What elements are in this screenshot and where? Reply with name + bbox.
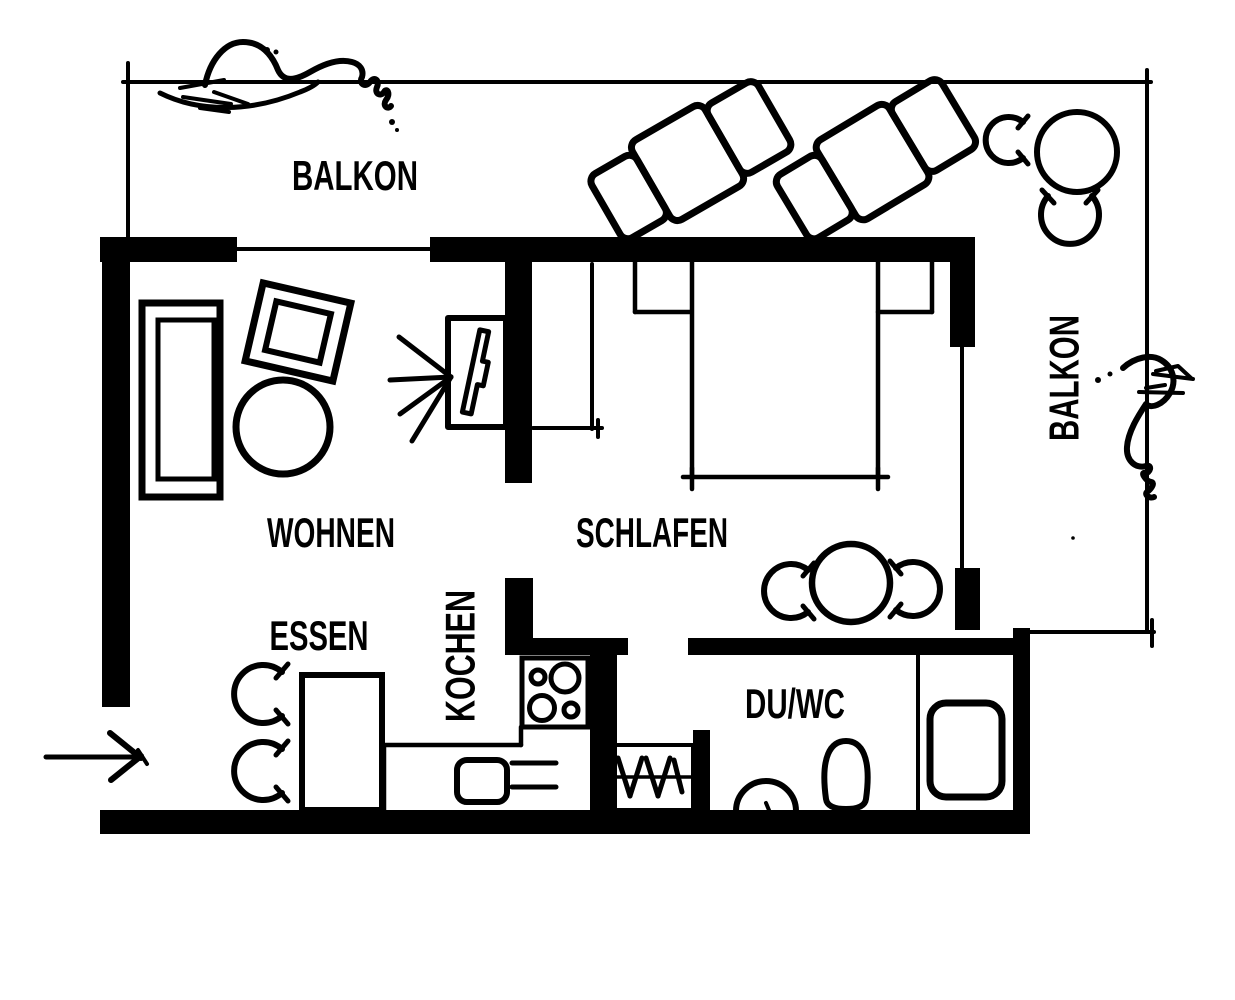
label-du-wc: DU/WC	[745, 680, 845, 727]
label-balkon-top: BALKON	[292, 152, 418, 199]
bedroom-chair-left	[764, 564, 808, 618]
entry-arrow-head	[110, 733, 141, 758]
wall-top-main	[430, 237, 975, 262]
label-balkon-right: BALKON	[1041, 315, 1088, 441]
plant-sketch-top-left	[160, 42, 399, 132]
armchair	[245, 283, 351, 381]
bedroom-table-set	[764, 544, 940, 622]
lounger-seat-section	[813, 101, 932, 223]
stove-burner	[551, 664, 579, 692]
plant-dot	[389, 119, 395, 125]
stove-burner	[531, 670, 545, 684]
balcony-chair-left	[986, 117, 1023, 163]
floorplan-drawing: BALKON WOHNEN SCHLAFEN ESSEN KOCHEN DU/W…	[0, 0, 1235, 1000]
wall-left	[102, 237, 130, 707]
wall-partition-living-bedroom	[505, 262, 532, 483]
balcony-round-table	[1037, 112, 1117, 192]
plant-dot	[395, 128, 399, 132]
dining-chair-lower	[234, 742, 282, 800]
entry-arrow-head	[111, 756, 141, 780]
lounger-seat-section	[628, 102, 747, 224]
sofa	[142, 303, 220, 497]
plant-dot	[264, 47, 270, 53]
bedroom-wardrobe	[533, 264, 602, 437]
lounger-back-section	[888, 76, 979, 174]
entry-arrow	[46, 733, 147, 780]
kitchen-sink	[457, 760, 507, 802]
sofa-outline	[142, 303, 220, 497]
wall-right-lower	[1013, 628, 1030, 812]
label-kochen: KOCHEN	[437, 590, 484, 722]
nightstand-left	[635, 262, 690, 312]
plant-dot	[1108, 372, 1113, 377]
walls	[100, 237, 1030, 834]
kitchen	[384, 658, 588, 810]
bathroom	[736, 655, 1002, 815]
lounger-back-section	[704, 78, 794, 176]
sun-lounger-right	[768, 71, 982, 250]
nightstand-right	[878, 262, 932, 312]
tv-unit	[390, 318, 506, 441]
wall-right-upper	[950, 262, 975, 347]
plant-dot	[1095, 377, 1101, 383]
plant-leaf-3	[1139, 392, 1183, 393]
label-schlafen: SCHLAFEN	[576, 509, 728, 556]
wall-bottom	[100, 810, 1030, 834]
dining-area	[234, 664, 382, 810]
label-wohnen: WOHNEN	[267, 509, 395, 556]
stove-burner	[530, 696, 555, 721]
wall-closet-stub	[693, 730, 710, 812]
dining-chair-upper	[234, 665, 282, 723]
label-essen: ESSEN	[270, 612, 369, 659]
tv-signal-ray	[400, 377, 451, 414]
wall-kitchen-left	[505, 578, 533, 655]
sofa-seat	[158, 320, 214, 479]
bedroom-chair-right	[896, 562, 940, 616]
armchair-seat	[265, 301, 331, 362]
double-bed	[683, 262, 888, 489]
floorplan-canvas: BALKON WOHNEN SCHLAFEN ESSEN KOCHEN DU/W…	[0, 0, 1235, 1000]
hall-closet	[612, 745, 693, 810]
sun-lounger-left	[583, 73, 797, 250]
toilet	[824, 741, 867, 809]
balcony-table-set	[986, 112, 1117, 244]
wall-bedroom-bottom	[688, 638, 1030, 655]
plant-dot	[274, 50, 279, 55]
wall-right-stub	[955, 568, 980, 630]
dining-table	[302, 675, 382, 810]
bedroom-round-table	[812, 544, 890, 622]
stove-burner	[564, 703, 578, 717]
tv-signal-ray	[399, 337, 451, 377]
tv-signal-ray	[390, 377, 451, 380]
balcony-chair-bottom	[1041, 196, 1099, 244]
plant-dot	[1071, 536, 1075, 540]
plant-sketch-right	[1071, 357, 1193, 540]
coffee-table	[236, 380, 330, 474]
armchair-outline	[245, 283, 351, 381]
tv-screen	[462, 330, 494, 415]
shower-tray	[930, 703, 1002, 797]
